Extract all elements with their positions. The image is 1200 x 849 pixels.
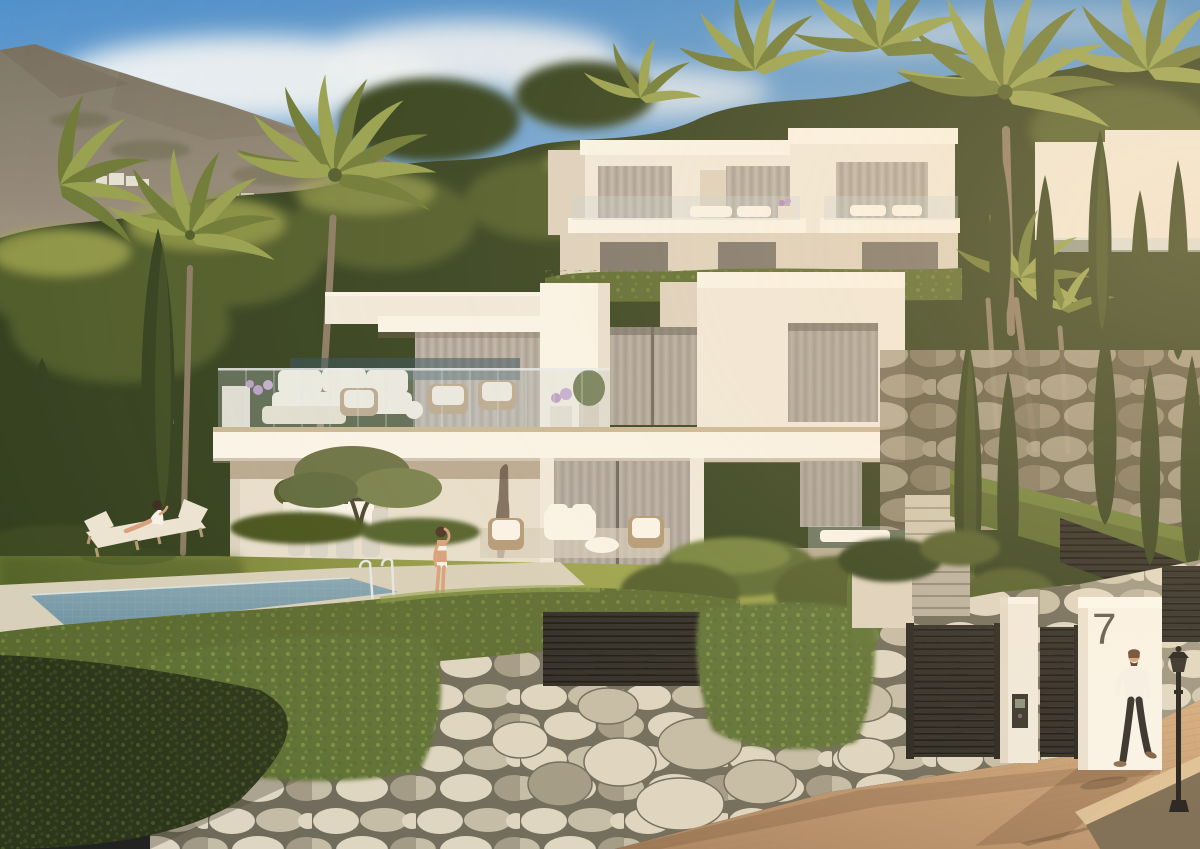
scene-render: 7	[0, 0, 1200, 849]
render-stage: 7	[0, 0, 1200, 849]
golden-light-overlay	[0, 0, 1200, 849]
